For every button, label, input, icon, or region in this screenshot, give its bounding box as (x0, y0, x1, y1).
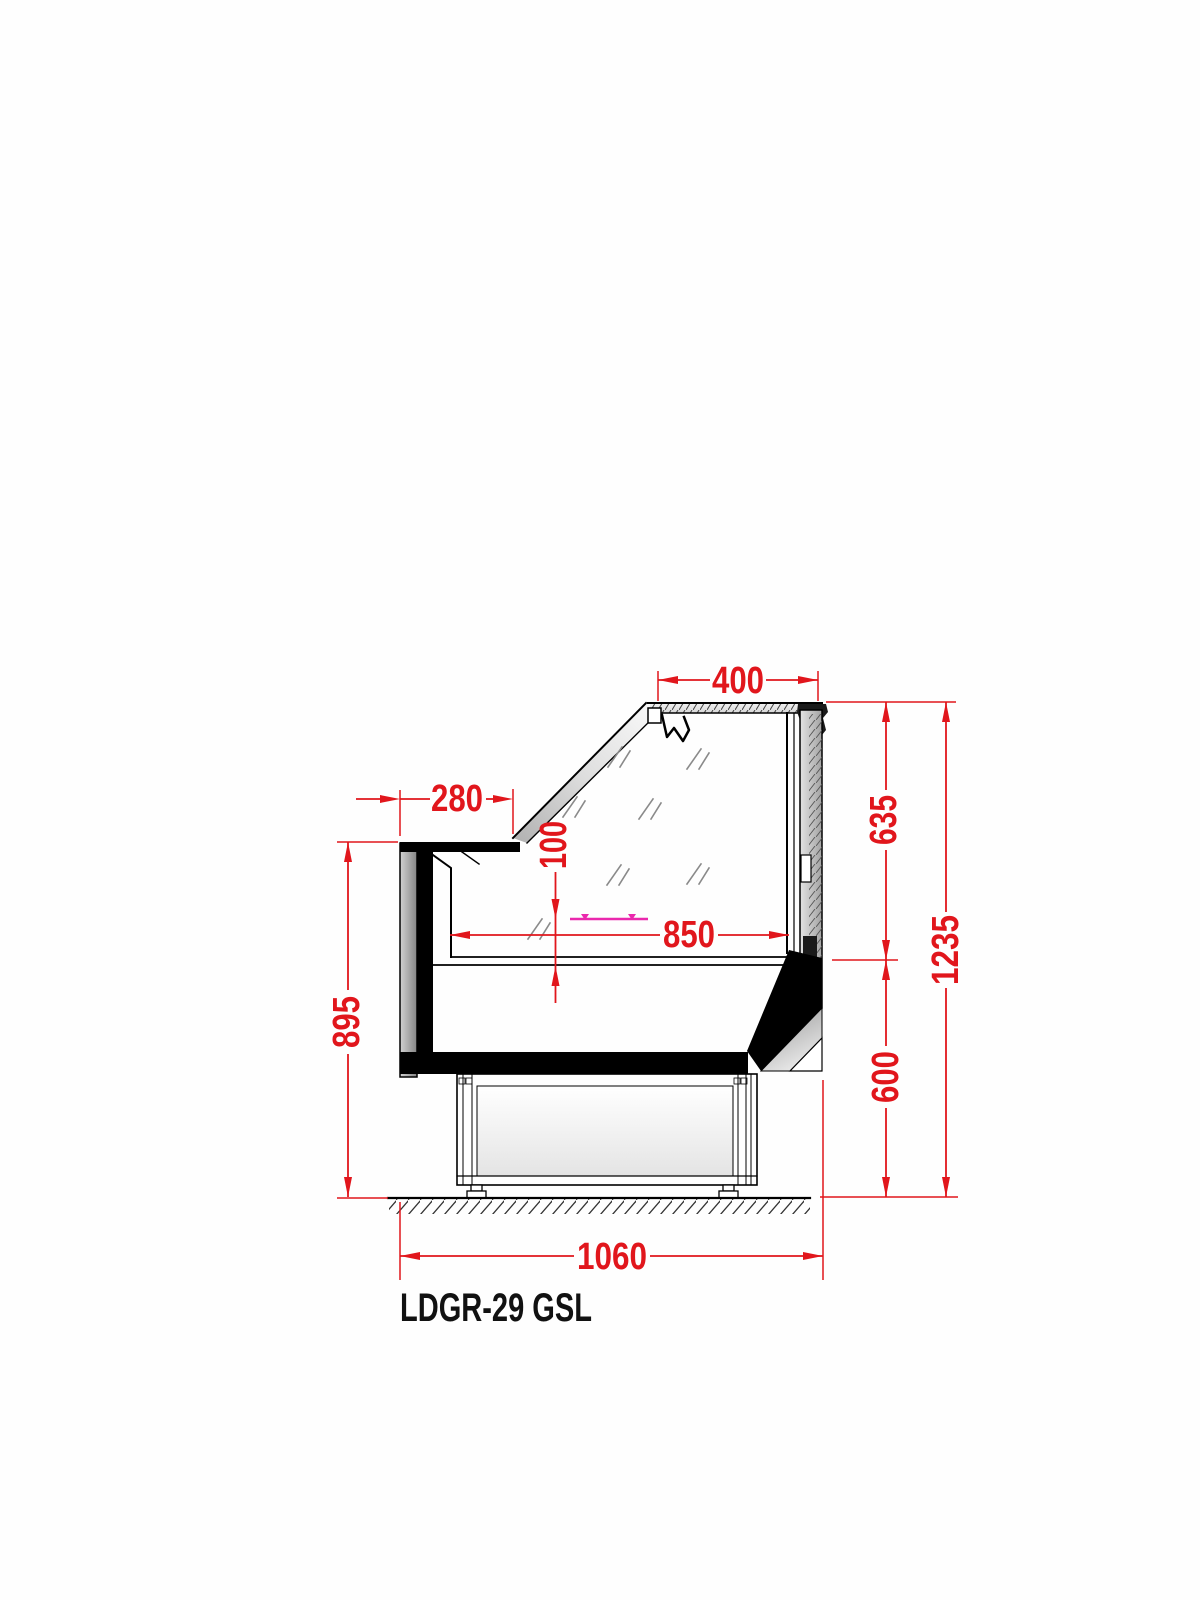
adjustable-foot-right (719, 1185, 738, 1198)
dim-label-total-height: 1235 (925, 915, 967, 985)
panel-slot (801, 855, 811, 882)
left-wall (400, 842, 520, 1077)
technical-drawing: 400 280 100 850 (0, 0, 1200, 1600)
interior-step (433, 852, 479, 957)
dimension-front-height: 895 (326, 842, 398, 1198)
dim-label-display-depth: 850 (663, 914, 715, 956)
dimension-front-ledge: 280 (356, 778, 513, 836)
dim-label-base-height: 600 (865, 1051, 907, 1103)
dim-label-top-depth: 400 (712, 660, 764, 702)
dim-label-deck-offset: 100 (533, 821, 575, 869)
dimension-base-height: 600 (865, 960, 907, 1197)
bottom-band (400, 950, 822, 1074)
deck-surface (433, 957, 789, 965)
adjustable-foot-left (467, 1185, 486, 1198)
base-plinth (457, 1074, 757, 1198)
dim-label-upper-height: 635 (863, 795, 905, 845)
dimension-display-depth: 850 (450, 914, 789, 956)
shelf-indicator (570, 914, 648, 920)
cap-left-notch (648, 708, 661, 723)
dimension-top-depth: 400 (658, 660, 818, 702)
dimension-total-height: 1235 (820, 702, 967, 1197)
model-label: LDGR-29 GSL (400, 1286, 592, 1330)
drawing-canvas: 400 280 100 850 (0, 0, 1200, 1600)
lamp-bracket (662, 715, 689, 741)
dim-label-front-ledge: 280 (431, 778, 483, 820)
rear-latch (803, 936, 817, 957)
dim-label-front-height: 895 (326, 996, 368, 1048)
ground-line (388, 1198, 810, 1214)
dimension-deck-offset: 100 (533, 821, 575, 1003)
dim-label-base-depth: 1060 (577, 1236, 647, 1278)
